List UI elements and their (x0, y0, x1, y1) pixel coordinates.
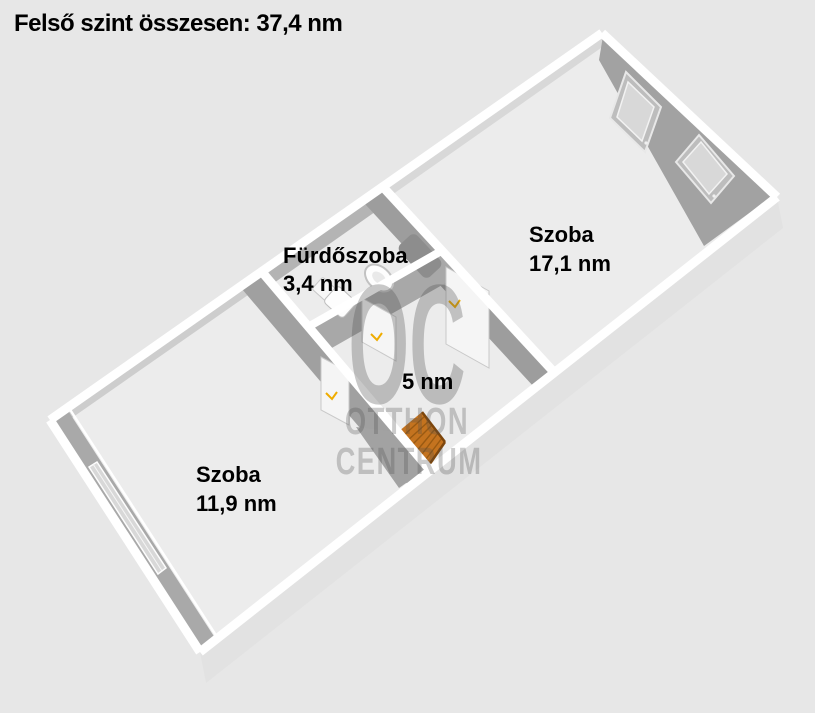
label-large-room-area: 17,1 nm (529, 251, 611, 276)
floorplan-page: OC OTTHON CENTRUM Fürdőszoba 3,4 nm Szob… (0, 0, 815, 713)
watermark-line1: OTTHON (345, 401, 469, 443)
label-small-room-area: 11,9 nm (196, 491, 277, 516)
window-handle-icon (712, 194, 715, 197)
page-title: Felső szint összesen: 37,4 nm (14, 10, 342, 37)
label-bathroom-name: Fürdőszoba (283, 243, 408, 268)
label-hallway-area: 5 nm (402, 369, 453, 394)
watermark: OC OTTHON CENTRUM (336, 250, 483, 483)
label-bathroom-area: 3,4 nm (283, 271, 353, 296)
window-handle-icon (644, 141, 647, 144)
watermark-line2: CENTRUM (336, 441, 483, 483)
label-large-room-name: Szoba (529, 222, 595, 247)
label-small-room-name: Szoba (196, 462, 262, 487)
floorplan-canvas: OC OTTHON CENTRUM Fürdőszoba 3,4 nm Szob… (0, 0, 815, 713)
